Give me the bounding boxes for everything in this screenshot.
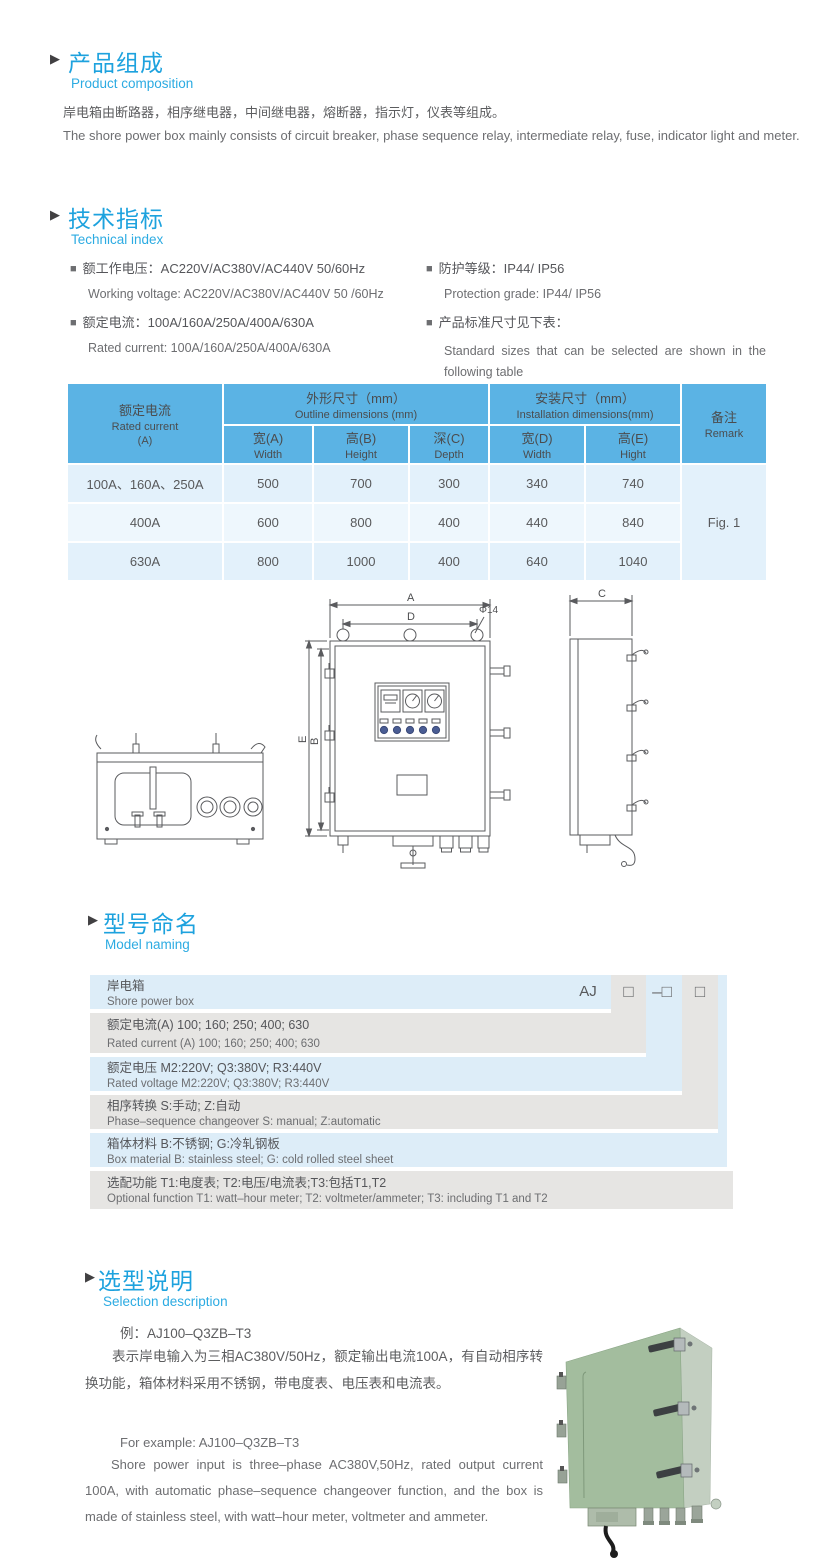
spec-standard-sizes: ■产品标准尺寸见下表： Standard sizes that can be s… bbox=[426, 312, 766, 383]
col-header-width-a: 宽(A)Width bbox=[224, 426, 312, 463]
cell-height-b: 1000 bbox=[314, 543, 408, 580]
cell-current: 400A bbox=[68, 504, 222, 541]
bullet-square-icon: ■ bbox=[426, 263, 433, 275]
model-code-slot-1: □ bbox=[611, 982, 646, 1002]
selection-body-cn: 表示岸电输入为三相AC380V/50Hz，额定输出电流100A，有自动相序转换功… bbox=[85, 1343, 543, 1397]
cell-current: 630A bbox=[68, 543, 222, 580]
cell-width-a: 500 bbox=[224, 465, 312, 502]
model-row-optional-function: 选配功能 T1:电度表; T2:电压/电流表;T3:包括T1,T2 Option… bbox=[90, 1171, 733, 1209]
cell-current: 100A、160A、250A bbox=[68, 465, 222, 502]
model-code-slot-3: □ bbox=[682, 982, 718, 1002]
dim-label-c: C bbox=[598, 588, 606, 600]
model-code-slot-2: –□ bbox=[644, 982, 680, 1002]
section-arrow-icon: ▶ bbox=[50, 208, 60, 221]
side-view-drawing bbox=[570, 595, 648, 867]
col-header-depth-c: 深(C)Depth bbox=[410, 426, 488, 463]
spec-working-voltage-cn: 额工作电压：AC220V/AC380V/AC440V 50/60Hz bbox=[83, 261, 366, 276]
cell-depth-c: 300 bbox=[410, 465, 488, 502]
dim-label-d: D bbox=[407, 611, 415, 623]
front-view-drawing bbox=[305, 599, 510, 868]
col-header-height-e: 高(E)Hight bbox=[586, 426, 680, 463]
selection-title-en: Selection description bbox=[103, 1294, 228, 1309]
spec-rated-current: ■额定电流：100A/160A/250A/400A/630A Rated cur… bbox=[70, 312, 331, 355]
spec-protection-grade-en: Protection grade: IP44/ IP56 bbox=[444, 287, 601, 301]
cell-height-b: 800 bbox=[314, 504, 408, 541]
section-arrow-icon: ▶ bbox=[50, 52, 60, 65]
spec-working-voltage-en: Working voltage: AC220V/AC380V/AC440V 50… bbox=[88, 287, 384, 301]
product-composition-body-cn: 岸电箱由断路器，相序继电器，中间继电器，熔断器，指示灯，仪表等组成。 bbox=[63, 102, 505, 121]
selection-title-cn: 选型说明 bbox=[98, 1262, 194, 1296]
table-row: 400A 600 800 400 440 840 bbox=[68, 504, 766, 541]
selection-body-en: Shore power input is three–phase AC380V,… bbox=[85, 1452, 543, 1530]
model-row-box-material: 箱体材料 B:不锈钢; G:冷轧钢板 Box material B: stain… bbox=[90, 1133, 727, 1167]
bullet-square-icon: ■ bbox=[70, 263, 77, 275]
model-row-rated-voltage: 额定电压 M2:220V; Q3:380V; R3:440V Rated vol… bbox=[90, 1057, 682, 1091]
cell-width-a: 800 bbox=[224, 543, 312, 580]
cell-height-e: 740 bbox=[586, 465, 680, 502]
technical-index-title-cn: 技术指标 bbox=[68, 200, 164, 234]
product-composition-title-en: Product composition bbox=[71, 76, 193, 91]
spec-protection-grade: ■防护等级：IP44/ IP56 Protection grade: IP44/… bbox=[426, 258, 601, 301]
spec-rated-current-cn: 额定电流：100A/160A/250A/400A/630A bbox=[83, 315, 314, 330]
table-row: 630A 800 1000 400 640 1040 bbox=[68, 543, 766, 580]
col-group-installation: 安装尺寸（mm） Installation dimensions(mm) bbox=[490, 384, 680, 424]
dim-label-e: E bbox=[297, 736, 309, 743]
cell-height-b: 700 bbox=[314, 465, 408, 502]
table-row: 100A、160A、250A 500 700 300 340 740 Fig. … bbox=[68, 465, 766, 502]
col-header-height-b: 高(B)Height bbox=[314, 426, 408, 463]
bottom-view-drawing bbox=[96, 733, 265, 844]
cell-height-e: 1040 bbox=[586, 543, 680, 580]
col-group-outline: 外形尺寸（mm） Outline dimensions (mm) bbox=[224, 384, 488, 424]
model-code-prefix: AJ bbox=[570, 983, 606, 1000]
dim-label-a: A bbox=[407, 592, 415, 604]
bullet-square-icon: ■ bbox=[426, 317, 433, 329]
bullet-square-icon: ■ bbox=[70, 317, 77, 329]
col-header-remark: 备注 Remark bbox=[682, 384, 766, 463]
cell-width-d: 440 bbox=[490, 504, 584, 541]
model-row-rated-current: 额定电流(A) 100; 160; 250; 400; 630 Rated cu… bbox=[90, 1013, 646, 1053]
product-composition-title-cn: 产品组成 bbox=[68, 44, 164, 78]
cell-width-d: 340 bbox=[490, 465, 584, 502]
dim-label-b: B bbox=[309, 738, 321, 745]
dimensions-table: 额定电流 Rated current (A) 外形尺寸（mm） Outline … bbox=[66, 382, 768, 582]
cell-height-e: 840 bbox=[586, 504, 680, 541]
catalog-page: ▶ 产品组成 Product composition 岸电箱由断路器，相序继电器… bbox=[0, 0, 830, 1568]
product-photo bbox=[548, 1302, 806, 1564]
cell-width-d: 640 bbox=[490, 543, 584, 580]
product-composition-body-en: The shore power box mainly consists of c… bbox=[63, 128, 800, 143]
cell-depth-c: 400 bbox=[410, 504, 488, 541]
model-row-product: 岸电箱 Shore power box bbox=[90, 975, 611, 1009]
control-panel-drawing bbox=[375, 683, 449, 741]
cell-depth-c: 400 bbox=[410, 543, 488, 580]
spec-standard-sizes-en: Standard sizes that can be selected are … bbox=[444, 341, 766, 383]
section-arrow-icon: ▶ bbox=[85, 1270, 95, 1283]
hinge-tabs bbox=[557, 1372, 567, 1483]
model-naming-title-cn: 型号命名 bbox=[103, 905, 199, 939]
cell-width-a: 600 bbox=[224, 504, 312, 541]
spec-rated-current-en: Rated current: 100A/160A/250A/400A/630A bbox=[88, 341, 331, 355]
model-row-phase-sequence: 相序转换 S:手动; Z:自动 Phase–sequence changeove… bbox=[90, 1095, 718, 1129]
cell-remark: Fig. 1 bbox=[682, 465, 766, 580]
col-header-rated-current: 额定电流 Rated current (A) bbox=[68, 384, 222, 463]
technical-drawing: A D Φ14 E B C bbox=[75, 583, 765, 888]
spec-protection-grade-cn: 防护等级：IP44/ IP56 bbox=[439, 261, 565, 276]
spec-working-voltage: ■额工作电压：AC220V/AC380V/AC440V 50/60Hz Work… bbox=[70, 258, 384, 301]
section-arrow-icon: ▶ bbox=[88, 913, 98, 926]
spec-standard-sizes-cn: 产品标准尺寸见下表： bbox=[439, 315, 569, 330]
technical-index-title-en: Technical index bbox=[71, 232, 163, 247]
model-naming-title-en: Model naming bbox=[105, 937, 190, 952]
col-header-width-d: 宽(D)Width bbox=[490, 426, 584, 463]
dim-label-phi14: Φ14 bbox=[479, 605, 499, 616]
